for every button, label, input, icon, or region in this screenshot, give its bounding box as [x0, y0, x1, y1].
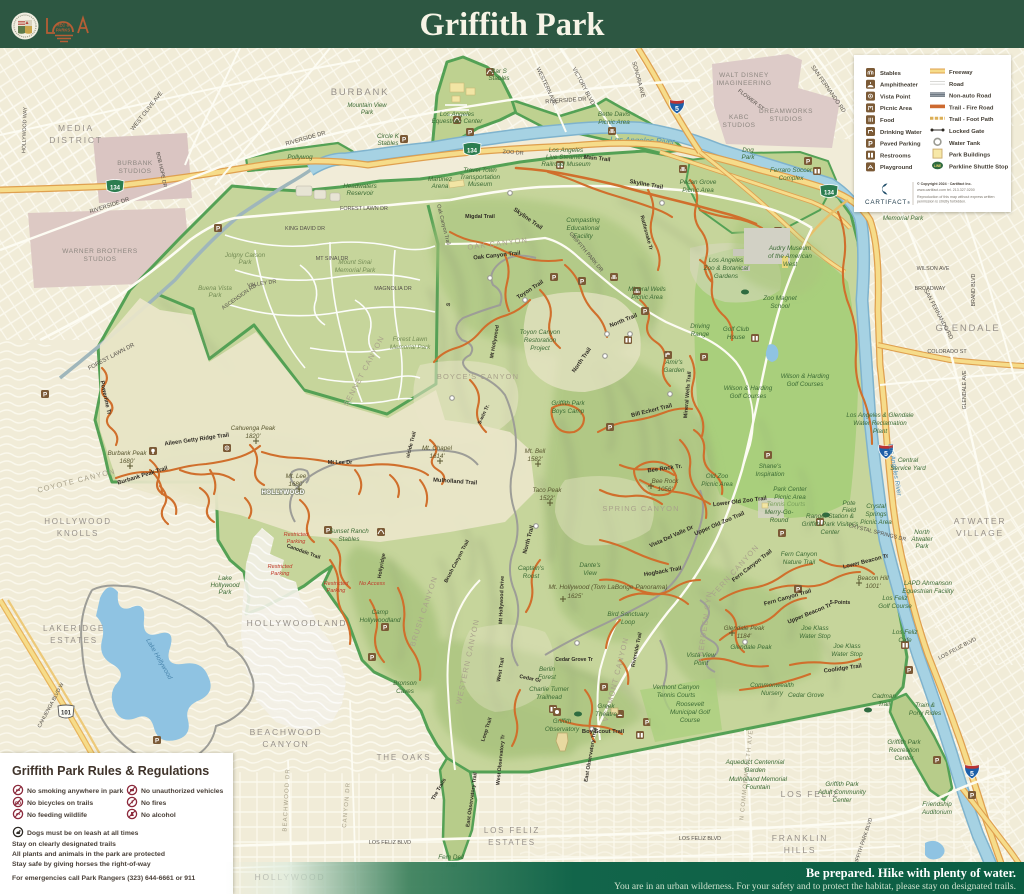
svg-text:Parking: Parking	[287, 539, 307, 545]
svg-text:Non-auto Road: Non-auto Road	[949, 94, 992, 100]
svg-text:P: P	[580, 278, 584, 285]
svg-text:Compasting: Compasting	[566, 217, 600, 224]
svg-text:FRANKLIN: FRANKLIN	[772, 833, 828, 843]
svg-text:Circle K: Circle K	[377, 133, 400, 140]
svg-text:Springs: Springs	[865, 511, 887, 518]
svg-text:Vista View: Vista View	[686, 652, 716, 659]
svg-text:Migdal Trail: Migdal Trail	[465, 214, 495, 220]
svg-text:Picnic Area: Picnic Area	[701, 481, 733, 488]
svg-text:Playground: Playground	[880, 165, 913, 171]
svg-text:Service Yard: Service Yard	[890, 465, 926, 472]
svg-text:5-Points: 5-Points	[830, 600, 851, 606]
svg-text:Restoration: Restoration	[524, 337, 557, 344]
svg-text:Golf Club: Golf Club	[723, 326, 750, 333]
svg-text:P: P	[608, 424, 612, 431]
svg-text:Buena Vista: Buena Vista	[198, 285, 232, 292]
svg-text:BURBANK: BURBANK	[117, 160, 153, 167]
svg-text:Mt. Lee: Mt. Lee	[286, 473, 307, 480]
svg-text:Park: Park	[742, 154, 756, 161]
svg-text:Commonwealth: Commonwealth	[750, 682, 794, 689]
svg-text:Charlie Turner: Charlie Turner	[529, 686, 570, 693]
svg-text:Mountain View: Mountain View	[347, 103, 387, 109]
svg-text:No alcohol: No alcohol	[141, 812, 176, 819]
svg-text:Wilson & Harding: Wilson & Harding	[781, 373, 830, 380]
svg-text:Headwaters: Headwaters	[343, 183, 377, 190]
svg-text:Vista Point: Vista Point	[880, 94, 910, 100]
svg-text:Picnic Area: Picnic Area	[774, 494, 806, 501]
svg-text:Trail - Foot Path: Trail - Foot Path	[949, 117, 994, 123]
svg-text:Center: Center	[821, 529, 841, 536]
svg-text:Zoo & Botanical: Zoo & Botanical	[703, 265, 749, 272]
svg-text:Restrooms: Restrooms	[880, 153, 911, 159]
svg-text:FOREST LAWN DR: FOREST LAWN DR	[340, 206, 388, 212]
svg-text:KING DAVID DR: KING DAVID DR	[285, 226, 325, 232]
svg-text:No fires: No fires	[141, 800, 167, 807]
svg-text:Lake: Lake	[218, 575, 232, 582]
svg-text:CARTIFACT®: CARTIFACT®	[865, 199, 911, 206]
svg-text:Beacon Hill: Beacon Hill	[857, 575, 889, 582]
svg-text:Paved Parking: Paved Parking	[880, 142, 921, 148]
svg-text:Range: Range	[691, 331, 710, 338]
svg-text:North: North	[914, 529, 930, 536]
svg-text:Pote: Pote	[843, 500, 856, 507]
svg-text:House: House	[727, 334, 746, 341]
svg-text:Old Zoo: Old Zoo	[706, 473, 729, 480]
svg-text:Bar S: Bar S	[491, 68, 508, 75]
svg-text:134: 134	[467, 149, 478, 155]
svg-text:WARNER BROTHERS: WARNER BROTHERS	[62, 248, 138, 255]
svg-text:Shane's: Shane's	[759, 463, 782, 470]
svg-text:Central: Central	[898, 457, 919, 464]
svg-text:Glendale Peak: Glendale Peak	[724, 625, 765, 632]
svg-text:Jolgny Carson: Jolgny Carson	[224, 252, 266, 259]
svg-text:© Copyright 2024 · Cartifact I: © Copyright 2024 · Cartifact Inc.	[917, 182, 972, 186]
svg-text:Cahuenga Peak: Cahuenga Peak	[231, 425, 276, 432]
svg-text:Greek: Greek	[597, 703, 615, 710]
svg-text:SPRING CANYON: SPRING CANYON	[602, 504, 679, 513]
svg-text:Bee Rock: Bee Rock	[652, 478, 680, 485]
svg-text:Trailhead: Trailhead	[536, 694, 562, 701]
svg-text:Equestrian Center: Equestrian Center	[432, 118, 484, 125]
svg-text:Equestrian Facility: Equestrian Facility	[902, 588, 954, 595]
svg-text:Freeway: Freeway	[949, 70, 973, 76]
svg-text:BURBANK: BURBANK	[331, 87, 390, 98]
svg-text:Park Buildings: Park Buildings	[949, 153, 991, 159]
svg-text:Roosevelt: Roosevelt	[676, 701, 704, 708]
svg-text:Reservoir: Reservoir	[347, 190, 375, 197]
svg-text:1820': 1820'	[246, 433, 262, 440]
svg-text:P: P	[766, 452, 770, 459]
svg-text:STUDIOS: STUDIOS	[118, 168, 151, 175]
svg-text:Drinking Water: Drinking Water	[880, 130, 922, 136]
svg-text:Memorial Park: Memorial Park	[335, 267, 376, 274]
svg-text:Toyon Canyon: Toyon Canyon	[520, 329, 561, 336]
svg-text:Burbank Peak: Burbank Peak	[108, 450, 148, 457]
svg-text:Bronson: Bronson	[393, 680, 417, 687]
svg-text:P: P	[155, 737, 159, 744]
svg-text:1184': 1184'	[737, 633, 752, 640]
svg-text:ATWATER: ATWATER	[954, 516, 1007, 526]
svg-text:Adult Community: Adult Community	[817, 789, 867, 796]
svg-text:MT SINAI DR: MT SINAI DR	[316, 256, 349, 262]
svg-text:STUDIOS: STUDIOS	[769, 116, 802, 123]
svg-text:Parking: Parking	[327, 588, 347, 594]
svg-text:Course: Course	[680, 717, 701, 724]
svg-text:Theatre: Theatre	[595, 711, 617, 718]
svg-text:P: P	[780, 530, 784, 537]
svg-text:Parkline Shuttle Stop: Parkline Shuttle Stop	[949, 164, 1009, 170]
svg-text:Bird Sanctuary: Bird Sanctuary	[607, 611, 649, 618]
svg-text:LOS FELIZ BLVD: LOS FELIZ BLVD	[369, 840, 411, 846]
svg-text:Dogs must be on leash at all t: Dogs must be on leash at all times	[27, 830, 139, 837]
svg-text:COLORADO ST: COLORADO ST	[927, 349, 967, 355]
svg-text:P: P	[370, 654, 374, 661]
svg-text:Wilson & Harding: Wilson & Harding	[724, 385, 773, 392]
svg-text:Live Steamers: Live Steamers	[546, 154, 587, 161]
svg-text:Municipal Golf: Municipal Golf	[670, 709, 711, 716]
svg-text:1001': 1001'	[866, 583, 882, 590]
svg-text:WALT DISNEY: WALT DISNEY	[719, 72, 769, 79]
svg-text:Zoo Magnet: Zoo Magnet	[762, 295, 797, 302]
svg-text:DREAMWORKS: DREAMWORKS	[759, 108, 813, 115]
svg-text:Griffith Park: Griffith Park	[825, 781, 859, 788]
svg-text:Atwater: Atwater	[910, 536, 933, 543]
svg-text:Forest Lawn: Forest Lawn	[393, 336, 428, 343]
svg-text:Captain's: Captain's	[518, 565, 545, 572]
svg-text:No bicycles on trails: No bicycles on trails	[27, 800, 93, 807]
svg-text:P: P	[907, 667, 911, 674]
svg-text:School: School	[770, 303, 790, 310]
svg-text:Inspiration: Inspiration	[755, 471, 785, 478]
svg-text:Garden: Garden	[663, 367, 685, 374]
svg-text:Ranger Station &: Ranger Station &	[806, 513, 854, 520]
svg-text:Los Feliz: Los Feliz	[892, 629, 918, 636]
svg-text:All plants and animals in the: All plants and animals in the park are p…	[12, 851, 165, 858]
svg-text:Memorial Park: Memorial Park	[883, 215, 924, 222]
svg-text:Picnic Area: Picnic Area	[880, 106, 913, 112]
svg-text:Cafe: Cafe	[898, 637, 912, 644]
svg-text:Los Angeles & Glendale: Los Angeles & Glendale	[846, 412, 914, 419]
svg-text:Park: Park	[361, 110, 374, 116]
svg-text:Boy Scout Trail: Boy Scout Trail	[582, 729, 625, 735]
svg-text:Arena: Arena	[431, 183, 449, 190]
svg-text:Berlin: Berlin	[539, 666, 556, 673]
svg-text:Taco Peak: Taco Peak	[532, 487, 562, 494]
svg-text:Griffith Park: Griffith Park	[887, 739, 921, 746]
svg-text:Restricted: Restricted	[324, 581, 350, 587]
svg-text:KNOLLS: KNOLLS	[57, 529, 99, 538]
svg-text:P: P	[468, 129, 472, 136]
svg-text:101: 101	[61, 711, 72, 717]
svg-text:WILSON AVE: WILSON AVE	[917, 266, 950, 272]
svg-text:Round: Round	[770, 517, 789, 524]
svg-text:KABC: KABC	[729, 114, 749, 121]
svg-text:Cedar Grove: Cedar Grove	[788, 692, 825, 699]
svg-text:Recreation: Recreation	[889, 747, 920, 754]
svg-text:Cadman: Cadman	[872, 693, 896, 700]
svg-text:1582': 1582'	[528, 456, 544, 463]
svg-text:Griffith Park: Griffith Park	[551, 400, 585, 407]
svg-text:Los Feliz: Los Feliz	[882, 595, 908, 602]
svg-text:Bette Davis: Bette Davis	[598, 111, 631, 118]
svg-text:P: P	[383, 624, 387, 631]
svg-text:STUDIOS: STUDIOS	[722, 122, 755, 129]
svg-text:1680': 1680'	[289, 481, 305, 488]
svg-text:Vermont Canyon: Vermont Canyon	[652, 684, 700, 691]
svg-text:LOS FELIZ: LOS FELIZ	[484, 826, 540, 835]
svg-text:Pollywog: Pollywog	[287, 154, 313, 161]
svg-text:ESTATES: ESTATES	[488, 838, 536, 847]
svg-text:Park Center: Park Center	[773, 486, 807, 493]
svg-text:ESTATES: ESTATES	[50, 636, 98, 645]
svg-text:Nursery: Nursery	[761, 690, 784, 697]
svg-text:THE OAKS: THE OAKS	[377, 753, 432, 762]
svg-text:Auditorium: Auditorium	[921, 809, 952, 816]
svg-text:HOLLYWOOD: HOLLYWOOD	[261, 489, 304, 496]
svg-text:BRAND BLVD: BRAND BLVD	[971, 273, 977, 306]
svg-text:BROADWAY: BROADWAY	[915, 286, 946, 292]
svg-text:HOLLYWOOD: HOLLYWOOD	[44, 517, 112, 526]
svg-text:Roost: Roost	[523, 573, 540, 580]
svg-text:Trail: Trail	[878, 701, 890, 708]
svg-text:Griffith: Griffith	[553, 718, 572, 725]
svg-text:No smoking anywhere in park: No smoking anywhere in park	[27, 788, 124, 795]
svg-text:Picnic Area: Picnic Area	[631, 294, 663, 301]
svg-text:Road: Road	[949, 82, 964, 88]
svg-text:HOLLYWOODLAND: HOLLYWOODLAND	[247, 618, 348, 628]
svg-text:LOS FELIZ BLVD: LOS FELIZ BLVD	[679, 836, 721, 842]
svg-text:134: 134	[110, 186, 121, 192]
svg-text:BOYCE'S CANYON: BOYCE'S CANYON	[437, 372, 519, 381]
svg-text:P: P	[935, 757, 939, 764]
svg-text:Parking: Parking	[271, 571, 291, 577]
svg-text:Trail - Fire Road: Trail - Fire Road	[949, 105, 994, 111]
svg-text:Transportation: Transportation	[460, 174, 501, 181]
svg-text:5: 5	[970, 771, 974, 778]
svg-text:Cedar Grove Tr: Cedar Grove Tr	[555, 657, 592, 663]
svg-text:Joe Klass: Joe Klass	[832, 643, 861, 650]
svg-text:BEACHWOOD: BEACHWOOD	[250, 727, 323, 737]
svg-text:Observatory: Observatory	[545, 726, 580, 733]
svg-text:Hollywood: Hollywood	[210, 582, 240, 589]
svg-text:CANYON: CANYON	[262, 739, 309, 749]
svg-text:HILLS: HILLS	[784, 845, 817, 855]
svg-text:Martinez: Martinez	[428, 176, 453, 183]
svg-text:Glendale Peak: Glendale Peak	[730, 644, 772, 651]
svg-text:Park: Park	[916, 543, 930, 550]
svg-text:Amir's: Amir's	[664, 359, 683, 366]
svg-text:Field: Field	[842, 507, 856, 514]
svg-text:Golf Courses: Golf Courses	[787, 381, 825, 388]
svg-text:Ferraro Soccer: Ferraro Soccer	[770, 167, 813, 174]
svg-text:MAGNOLIA DR: MAGNOLIA DR	[374, 286, 412, 292]
svg-text:No feeding wildlife: No feeding wildlife	[27, 812, 87, 819]
svg-text:Park: Park	[239, 259, 253, 266]
svg-text:Pony Rides: Pony Rides	[909, 710, 942, 717]
svg-text:Stables: Stables	[338, 536, 360, 543]
svg-text:Memorial Park: Memorial Park	[390, 344, 431, 351]
svg-text:Train &: Train &	[915, 702, 935, 709]
svg-text:P: P	[645, 719, 649, 726]
svg-text:P: P	[602, 684, 606, 691]
svg-text:Picnic Area: Picnic Area	[860, 519, 892, 526]
svg-text:Mt Lee Dr: Mt Lee Dr	[328, 460, 353, 466]
svg-text:5: 5	[884, 451, 888, 458]
svg-text:LAPD Ahmanson: LAPD Ahmanson	[904, 580, 953, 587]
svg-text:Locked Gate: Locked Gate	[949, 129, 985, 135]
svg-text:Park: Park	[219, 589, 233, 596]
svg-text:Restricted: Restricted	[284, 532, 310, 538]
svg-text:P: P	[552, 274, 556, 281]
svg-text:Audry Museum: Audry Museum	[768, 245, 811, 252]
svg-text:Boys Camp: Boys Camp	[552, 408, 585, 415]
svg-text:P: P	[868, 141, 873, 148]
svg-text:Water Stop: Water Stop	[831, 651, 863, 658]
svg-text:Stables: Stables	[488, 75, 510, 82]
svg-text:P: P	[402, 136, 406, 143]
svg-text:Mt. Hollywood (Tom LaBonge Pan: Mt. Hollywood (Tom LaBonge Panorama)	[549, 584, 668, 591]
svg-text:P: P	[806, 158, 810, 165]
svg-text:Mt. Chapel: Mt. Chapel	[422, 445, 453, 452]
svg-text:Food: Food	[880, 118, 895, 124]
svg-text:1625': 1625'	[568, 593, 584, 600]
svg-text:Aqueduct Centennial: Aqueduct Centennial	[725, 759, 785, 766]
svg-text:Los Angeles: Los Angeles	[709, 257, 744, 264]
svg-text:Garden: Garden	[744, 767, 766, 774]
svg-text:Park: Park	[209, 292, 223, 299]
svg-text:Crystal: Crystal	[866, 503, 886, 510]
svg-text:Camp: Camp	[372, 609, 389, 616]
svg-text:1056': 1056'	[658, 486, 674, 493]
svg-text:Fountain: Fountain	[746, 784, 771, 791]
svg-text:Railroad Museum: Railroad Museum	[541, 161, 590, 168]
svg-text:Hollywoodland: Hollywoodland	[360, 617, 401, 624]
svg-text:Fern Canyon: Fern Canyon	[781, 551, 818, 558]
svg-text:Travel Town: Travel Town	[463, 167, 497, 174]
svg-text:P: P	[643, 308, 647, 315]
svg-text:of the American: of the American	[768, 253, 812, 260]
svg-text:Tennis Courts: Tennis Courts	[767, 501, 806, 508]
svg-text:5: 5	[675, 106, 679, 113]
svg-text:STUDIOS: STUDIOS	[83, 256, 116, 263]
svg-text:permission is strictly forbidd: permission is strictly forbidden.	[917, 200, 966, 204]
svg-text:Dante's: Dante's	[579, 562, 601, 569]
svg-text:Center: Center	[833, 797, 853, 804]
svg-text:West: West	[783, 261, 797, 268]
svg-text:P: P	[216, 225, 220, 232]
svg-text:Restricted: Restricted	[268, 564, 294, 570]
svg-text:Plant: Plant	[873, 428, 888, 435]
svg-text:Picnic Area: Picnic Area	[598, 119, 630, 126]
svg-text:Golf Courses: Golf Courses	[730, 393, 768, 400]
svg-text:Los Angeles: Los Angeles	[549, 147, 584, 154]
svg-text:P: P	[970, 792, 974, 799]
svg-text:Mulholland Memorial: Mulholland Memorial	[729, 776, 788, 783]
svg-text:Los Angeles: Los Angeles	[440, 111, 475, 118]
svg-text:1522': 1522'	[540, 495, 556, 502]
svg-text:Amphitheater: Amphitheater	[880, 83, 919, 89]
svg-text:Friendship: Friendship	[922, 801, 952, 808]
svg-text:Griffith Park Rules & Regulati: Griffith Park Rules & Regulations	[12, 764, 209, 778]
svg-text:Nature Trail: Nature Trail	[783, 559, 816, 566]
svg-text:Sunset Ranch: Sunset Ranch	[329, 528, 369, 535]
svg-text:No Access: No Access	[359, 581, 385, 587]
svg-text:Stables: Stables	[377, 140, 399, 147]
svg-text:Pecan Grove: Pecan Grove	[680, 179, 717, 186]
svg-text:Golf Course: Golf Course	[878, 603, 912, 610]
svg-text:P: P	[43, 391, 47, 398]
svg-text:Water Stop: Water Stop	[799, 633, 831, 640]
svg-text:Stables: Stables	[880, 71, 902, 77]
svg-text:Stay on clearly designated tra: Stay on clearly designated trails	[12, 841, 116, 848]
svg-text:VILLAGE: VILLAGE	[956, 528, 1004, 538]
svg-text:IMAGINEERING: IMAGINEERING	[716, 80, 771, 87]
svg-text:No unauthorized vehicles: No unauthorized vehicles	[141, 788, 224, 795]
svg-text:Reproduction of this map witho: Reproduction of this map without express…	[917, 195, 995, 199]
svg-text:DISTRICT: DISTRICT	[49, 135, 103, 145]
svg-text:View: View	[583, 570, 597, 577]
svg-text:Fern Dell: Fern Dell	[438, 854, 464, 861]
svg-text:LAKERIDGE: LAKERIDGE	[43, 624, 105, 633]
svg-text:Center: Center	[895, 755, 915, 762]
svg-text:Loop: Loop	[621, 619, 636, 626]
svg-text:Merry-Go-: Merry-Go-	[765, 509, 794, 516]
svg-text:Point: Point	[694, 660, 709, 667]
svg-text:P: P	[702, 354, 706, 361]
svg-text:www.cartifact.com tel. 213.3: www.cartifact.com tel. 213.327.0200	[917, 188, 975, 192]
svg-text:MEDIA: MEDIA	[58, 123, 94, 133]
svg-text:1614': 1614'	[430, 453, 446, 460]
svg-text:Complex: Complex	[779, 175, 805, 182]
svg-text:Joe Klass: Joe Klass	[800, 625, 829, 632]
svg-text:Mineral Wells: Mineral Wells	[628, 286, 667, 293]
svg-text:Tennis Courts: Tennis Courts	[657, 692, 696, 699]
svg-text:Dog: Dog	[742, 147, 754, 154]
svg-text:Project: Project	[530, 345, 550, 352]
svg-text:Gardens: Gardens	[714, 273, 739, 280]
svg-text:Mt. Bell: Mt. Bell	[525, 448, 546, 455]
svg-text:134: 134	[824, 191, 835, 197]
svg-text:Water Reclamation: Water Reclamation	[853, 420, 907, 427]
svg-text:Museum: Museum	[468, 181, 492, 188]
svg-text:Driving: Driving	[690, 323, 710, 330]
svg-text:Caves: Caves	[396, 688, 415, 695]
svg-text:Water Tank: Water Tank	[949, 141, 981, 147]
svg-text:LINE: LINE	[934, 164, 941, 168]
svg-text:1680': 1680'	[120, 458, 136, 465]
svg-text:GLENDALE AVE: GLENDALE AVE	[962, 370, 968, 409]
svg-text:Picnic Area: Picnic Area	[682, 187, 714, 194]
